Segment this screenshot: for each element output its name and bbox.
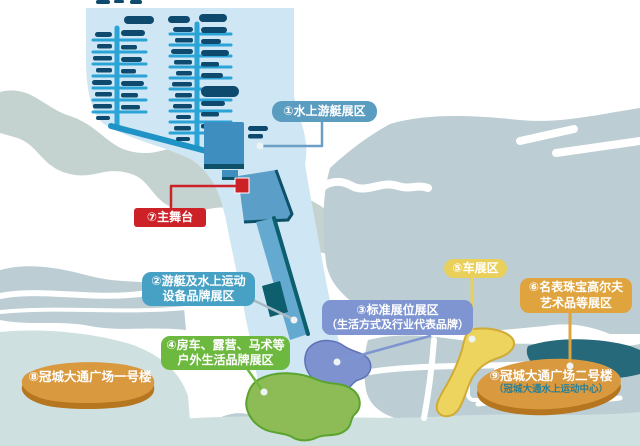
label-zone9-building-two: ⑨冠城大通广场二号楼 （冠城大通水上运动中心）: [467, 368, 635, 396]
expo-venue-map: ①水上游艇展区 ⑦主舞台 ②游艇及水上运动 设备品牌展区 ③标准展位展区 （生活…: [0, 0, 640, 446]
label-zone1-water-yacht: ①水上游艇展区: [272, 101, 377, 122]
zone9-label-line2: （冠城大通水上运动中心）: [494, 384, 608, 396]
zone6-label-line1: ⑥名表珠宝高尔夫: [529, 280, 623, 295]
zone4-label-line1: ④房车、露营、马术等: [166, 338, 284, 353]
label-zone7-main-stage: ⑦主舞台: [134, 208, 206, 227]
zone3-label-line1: ③标准展位展区: [356, 303, 438, 318]
zone8-label-text: ⑧冠城大通广场一号楼: [28, 369, 151, 385]
zone1-label-text: ①水上游艇展区: [283, 104, 365, 119]
label-zone5-car-show: ⑤车展区: [444, 259, 507, 278]
label-zone8-building-one: ⑧冠城大通广场一号楼: [22, 369, 158, 385]
label-zone4-outdoor-life: ④房车、露营、马术等 户外生活品牌展区: [161, 336, 290, 370]
label-zone3-standard-booth: ③标准展位展区 （生活方式及行业代表品牌）: [322, 300, 473, 335]
zone6-label-line2: 艺术品等展区: [540, 296, 612, 311]
label-zone2-yacht-equipment: ②游艇及水上运动 设备品牌展区: [142, 272, 255, 306]
zone2-label-line2: 设备品牌展区: [162, 289, 234, 304]
zone5-label-text: ⑤车展区: [452, 261, 498, 276]
zone3-label-line2: （生活方式及行业代表品牌）: [326, 318, 469, 332]
zone2-label-line1: ②游艇及水上运动: [151, 274, 245, 289]
zone4-label-line2: 户外生活品牌展区: [177, 353, 273, 368]
zone9-label-line1: ⑨冠城大通广场二号楼: [489, 368, 612, 384]
zone7-label-text: ⑦主舞台: [147, 210, 193, 225]
label-zone6-watch-jewelry: ⑥名表珠宝高尔夫 艺术品等展区: [520, 278, 632, 313]
